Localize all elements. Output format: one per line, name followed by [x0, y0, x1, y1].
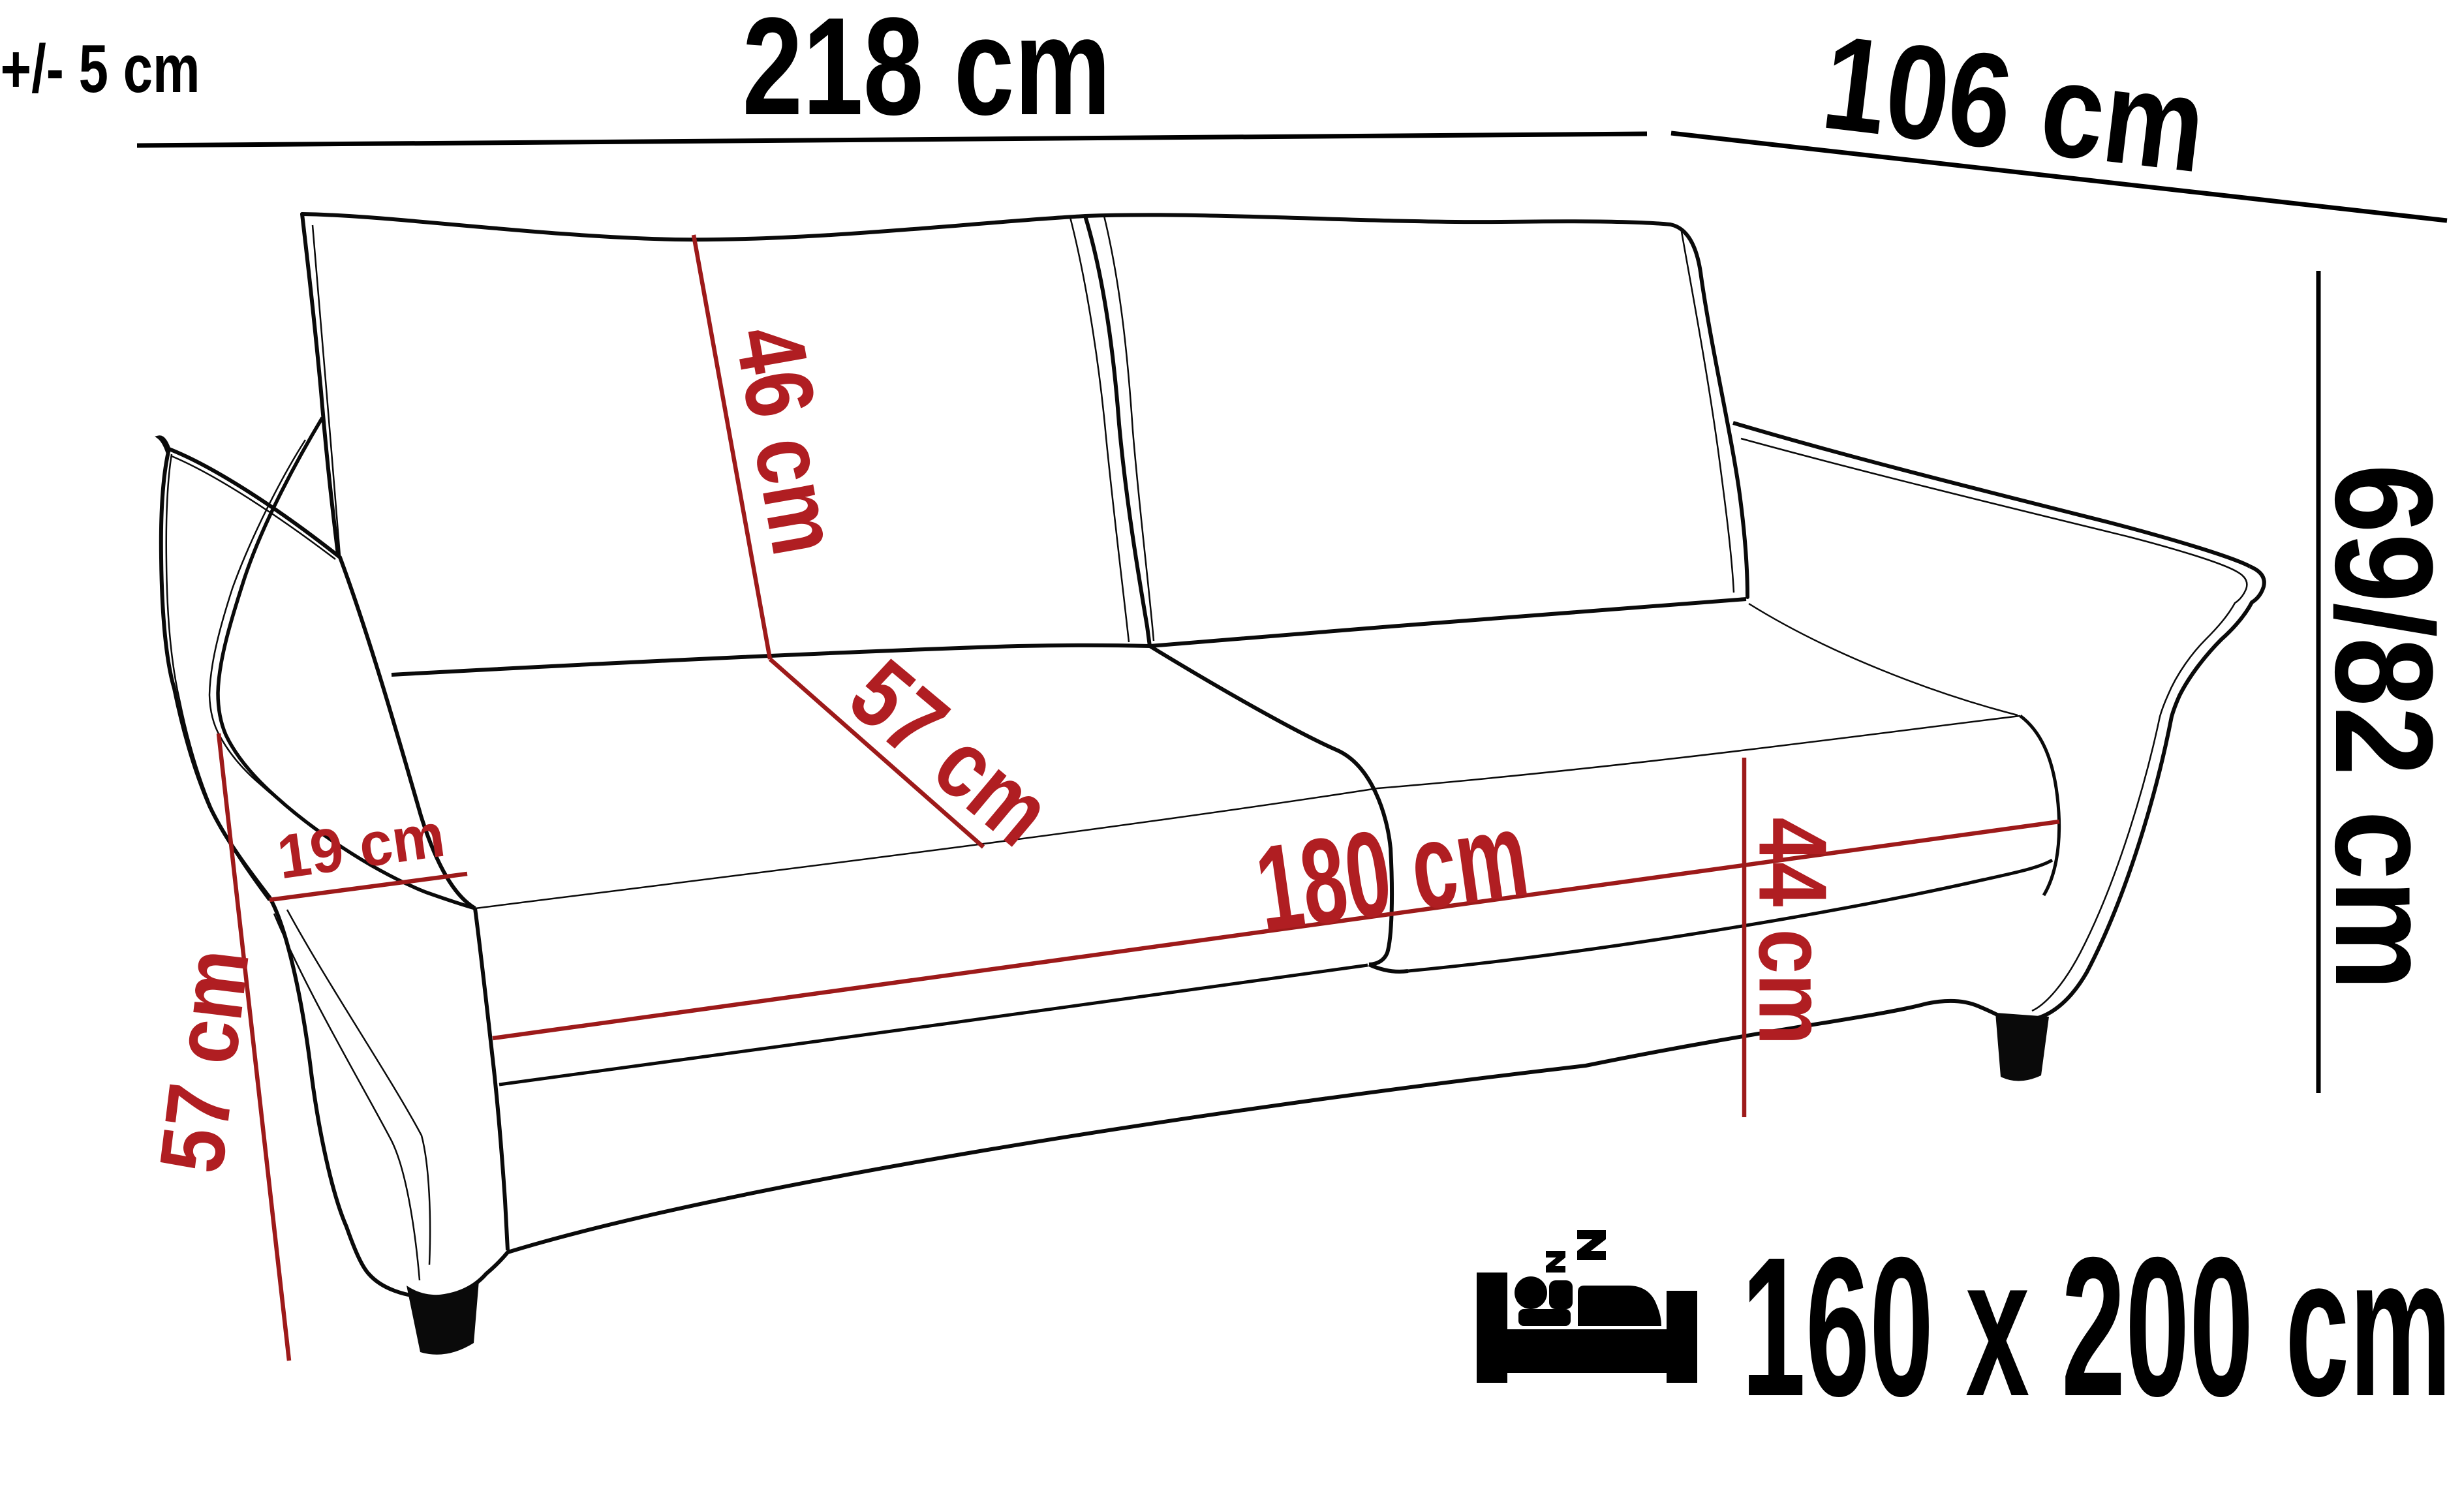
- svg-text:69/82 cm: 69/82 cm: [2306, 464, 2461, 991]
- svg-text:+/- 5 cm: +/- 5 cm: [1, 31, 200, 107]
- svg-text:160 x 200 cm: 160 x 200 cm: [1742, 1216, 2452, 1438]
- svg-text:44 cm: 44 cm: [1739, 818, 1847, 1045]
- svg-text:218 cm: 218 cm: [743, 0, 1111, 144]
